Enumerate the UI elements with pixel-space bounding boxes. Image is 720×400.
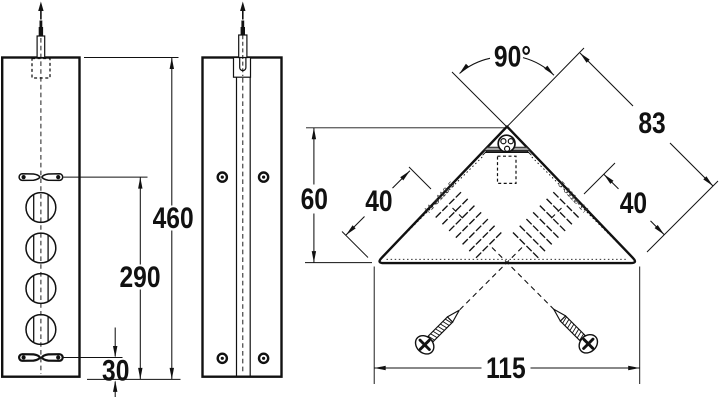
svg-text:460: 460 xyxy=(153,201,194,235)
svg-text:30: 30 xyxy=(102,353,129,387)
svg-text:83: 83 xyxy=(638,106,665,140)
svg-text:290: 290 xyxy=(119,260,160,294)
svg-text:40: 40 xyxy=(365,184,392,218)
svg-text:40: 40 xyxy=(620,185,647,219)
svg-text:60: 60 xyxy=(301,182,328,216)
svg-text:115: 115 xyxy=(486,351,526,385)
svg-text:90°: 90° xyxy=(494,39,531,73)
